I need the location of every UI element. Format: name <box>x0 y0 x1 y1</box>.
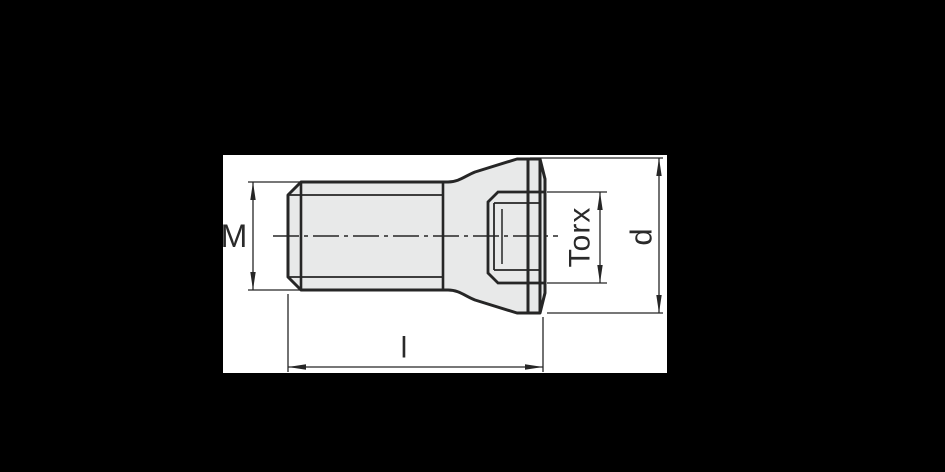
drawing-canvas: M Torx d <box>0 0 945 472</box>
label-drive: Torx <box>564 207 597 268</box>
label-length: l <box>401 332 408 365</box>
technical-drawing: M Torx d <box>223 155 667 373</box>
dim-d-arrow-up <box>656 158 661 176</box>
dim-l-arrow-right <box>525 364 543 369</box>
dim-torx-arrow-up <box>597 192 602 210</box>
label-thread-size: M <box>223 218 247 254</box>
dim-torx-arrow-down <box>597 265 602 283</box>
dim-m-arrow-up <box>250 182 255 200</box>
dim-d-arrow-down <box>656 295 661 313</box>
drawing-paper: M Torx d <box>223 155 667 373</box>
dim-l-arrow-left <box>288 364 306 369</box>
dim-m-arrow-down <box>250 272 255 290</box>
label-head-diameter: d <box>624 228 659 245</box>
